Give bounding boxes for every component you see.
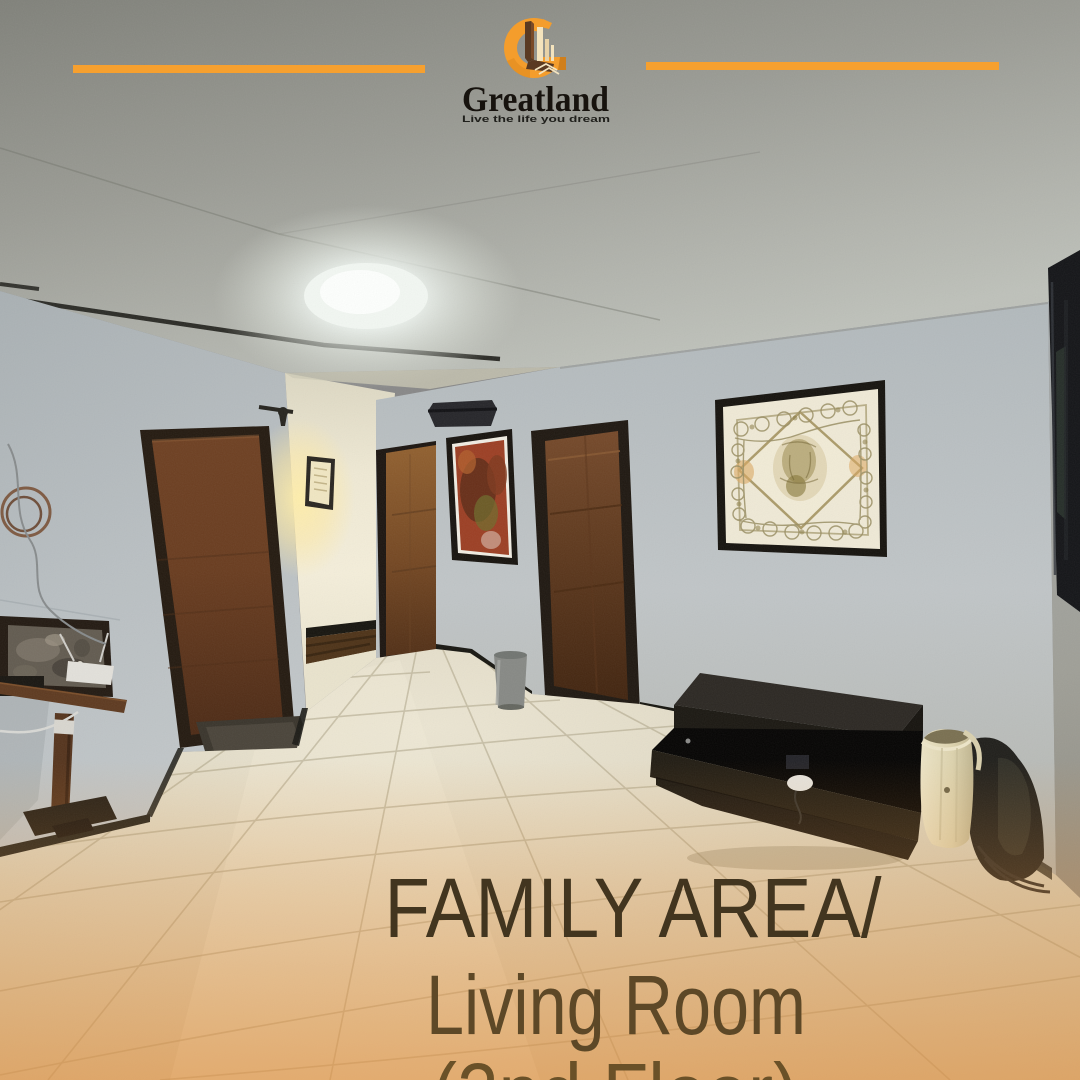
svg-text:FAMILY AREA/: FAMILY AREA/	[385, 861, 883, 955]
svg-text:Live the life you dream: Live the life you dream	[462, 114, 610, 125]
svg-text:Greatland: Greatland	[462, 79, 609, 119]
svg-text:(2nd Floor): (2nd Floor)	[432, 1046, 798, 1080]
svg-text:Living Room: Living Room	[426, 958, 806, 1052]
